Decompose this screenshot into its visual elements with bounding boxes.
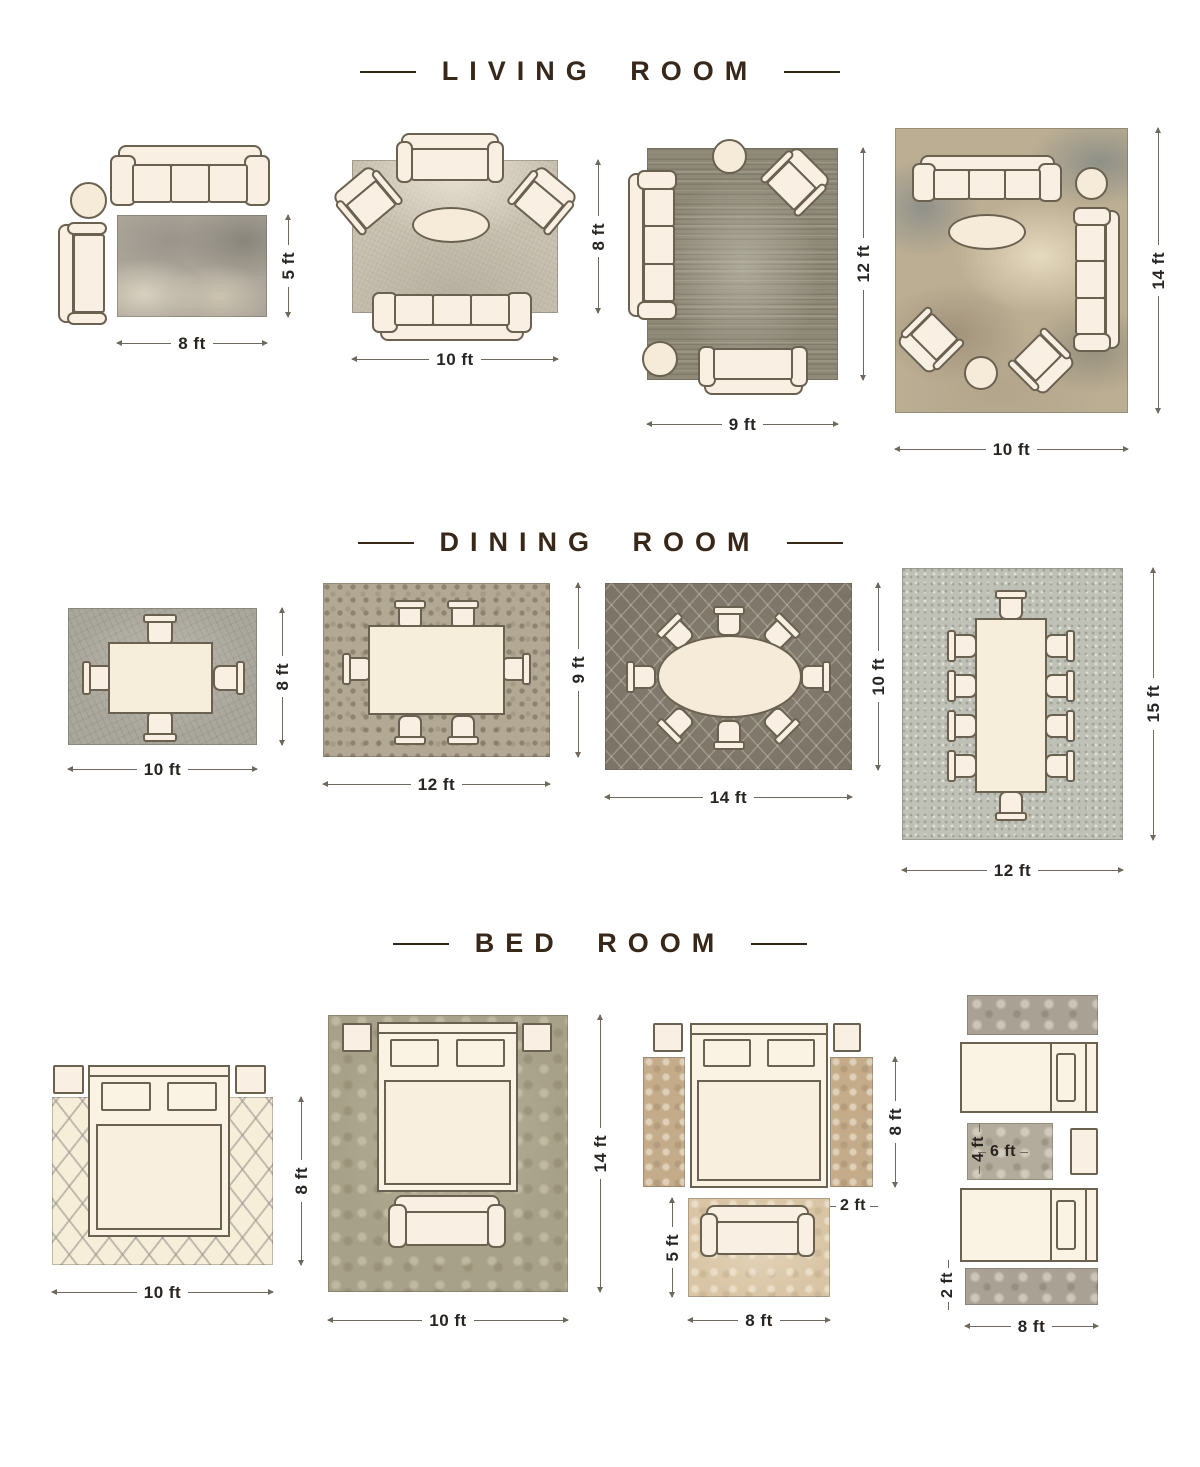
width-dimension: 10 ft (895, 439, 1128, 459)
dimension-line (948, 1302, 949, 1310)
cushion (132, 164, 172, 204)
blanket (697, 1080, 820, 1181)
dining-table (108, 642, 213, 714)
side-table-round (642, 341, 678, 377)
dining-room-9x12-layout: 12 ft 9 ft (318, 580, 593, 795)
sofa-seat (394, 294, 509, 326)
cushion (1075, 224, 1106, 262)
sofa-seat (73, 234, 105, 312)
chair-seat (213, 665, 238, 691)
dimension-line (672, 1268, 673, 1297)
accent-rug-width-dimension: 6 ft (978, 1142, 1050, 1162)
sofa-three-seat (110, 145, 270, 207)
height-dimension: 15 ft (1143, 568, 1163, 840)
sofa-arm (67, 312, 107, 325)
twin-bed (960, 1188, 1098, 1262)
pillow (1056, 1053, 1076, 1101)
cushion (208, 164, 248, 204)
height-dimension: 9 ft (568, 583, 588, 757)
width-dimension: 12 ft (902, 860, 1123, 880)
height-dimension: 12 ft (853, 148, 873, 380)
chair-seat (954, 674, 977, 698)
nightstand (235, 1065, 266, 1094)
nightstand (342, 1023, 372, 1052)
dimension-label: 12 ft (855, 245, 872, 282)
dining-room-12x15-layout: 12 ft 15 ft (895, 565, 1165, 880)
bench (700, 1205, 815, 1258)
dimension-label: 10 ft (429, 351, 480, 368)
dimension-label: 8 ft (887, 1108, 904, 1136)
dining-room-8x10-layout: 10 ft 8 ft (55, 600, 295, 785)
dimension-label: 12 ft (411, 776, 462, 793)
bench-seat (405, 1211, 490, 1246)
sofa-three-seat (1072, 207, 1120, 352)
dimension-line (1052, 1326, 1098, 1327)
title-dash-right (784, 71, 840, 73)
dimension-label: 12 ft (987, 862, 1038, 879)
chair-seat (1045, 634, 1068, 658)
width-dimension: 8 ft (688, 1310, 830, 1330)
bed (690, 1023, 828, 1188)
dining-chair (213, 664, 245, 692)
dining-chair (998, 590, 1024, 620)
dimension-line (878, 702, 879, 770)
living-room-8x10-layout: 10 ft 8 ft (330, 125, 615, 375)
dining-chair (626, 664, 656, 690)
dimension-line (578, 583, 579, 649)
sofa-arm (487, 141, 504, 183)
dimension-line (948, 1260, 949, 1268)
dimension-line (282, 608, 283, 656)
chair-seat (1045, 714, 1068, 738)
living-room-section-title: LIVING ROOM (0, 56, 1200, 87)
bench-arm (487, 1204, 506, 1248)
dimension-label: 10 ft (137, 761, 188, 778)
dining-chair (947, 753, 977, 779)
dimension-line (282, 697, 283, 745)
dining-chair (998, 791, 1024, 821)
dimension-label: 8 ft (1011, 1318, 1053, 1335)
dimension-label: 8 ft (274, 663, 291, 691)
dimension-line (902, 870, 987, 871)
dimension-label: 10 ft (137, 1284, 188, 1301)
dimension-line (578, 691, 579, 757)
blanket (384, 1080, 510, 1185)
loveseat (396, 133, 504, 184)
dimension-line (598, 160, 599, 216)
sofa-back (58, 224, 74, 323)
headboard (690, 1023, 828, 1035)
coffee-table-oval (948, 214, 1026, 250)
sofa-three-seat (628, 170, 678, 320)
chair-seat (954, 714, 977, 738)
living-room-9x12-layout: 9 ft 12 ft (618, 138, 878, 438)
dimension-label: 5 ft (280, 252, 297, 280)
dining-chair (146, 710, 174, 742)
cushion (394, 294, 434, 326)
dimension-line (978, 1152, 986, 1153)
dining-chair (450, 715, 476, 745)
dining-table (975, 618, 1047, 793)
dimension-line (600, 1015, 601, 1128)
chair-seat (717, 613, 741, 636)
cushion (643, 263, 675, 302)
loveseat (58, 222, 108, 325)
title-dash-left (358, 542, 414, 544)
dining-room-section-title: DINING ROOM (0, 527, 1200, 558)
sofa-seat (933, 169, 1041, 200)
bed-divider (1050, 1044, 1052, 1111)
headboard (377, 1022, 518, 1034)
dimension-line (323, 784, 411, 785)
dimension-label: 15 ft (1145, 685, 1162, 722)
coffee-table-oval (412, 207, 490, 243)
dining-chair (716, 606, 742, 636)
runner-rug-2x8 (643, 1057, 685, 1187)
nightstand (653, 1023, 683, 1052)
cushion (432, 294, 472, 326)
dimension-line (1153, 568, 1154, 678)
pillow (101, 1082, 151, 1111)
dining-table-oval (657, 635, 802, 718)
dimension-line (68, 769, 137, 770)
sofa-three-seat (912, 155, 1062, 203)
sofa-back (628, 173, 644, 317)
headboard (88, 1065, 230, 1077)
section-title-text: BED ROOM (475, 928, 726, 959)
sofa-seat (132, 164, 247, 204)
cushion (713, 348, 792, 380)
runner-rug-2x8 (965, 1268, 1098, 1305)
living-room-10x14-layout: 10 ft 14 ft (888, 120, 1173, 460)
dining-chair (1045, 713, 1075, 739)
dimension-line (301, 1202, 302, 1265)
dimension-line (213, 343, 267, 344)
height-dimension: 8 ft (291, 1097, 311, 1265)
chair-seat (801, 665, 824, 689)
pillow (456, 1039, 505, 1067)
dimension-label: 10 ft (986, 441, 1037, 458)
height-dimension: 14 ft (1148, 128, 1168, 413)
dimension-line (763, 424, 838, 425)
dining-chair (801, 664, 831, 690)
runner-width-dimension: 2 ft (828, 1196, 890, 1216)
dining-chair (1045, 673, 1075, 699)
bench-arm (797, 1213, 815, 1256)
rug-size-guide: LIVING ROOM 8 ft 5 ft (0, 0, 1200, 1467)
cushion (411, 148, 489, 181)
sofa-seat (713, 348, 792, 380)
dimension-line (1158, 296, 1159, 413)
dimension-label: 6 ft (986, 1144, 1020, 1160)
bed-room-section-title: BED ROOM (0, 928, 1200, 959)
rug-5x8 (117, 215, 267, 317)
dimension-label: 8 ft (171, 335, 213, 352)
nightstand (522, 1023, 552, 1052)
cushion (470, 294, 510, 326)
sofa-three-seat (372, 291, 532, 341)
chair-seat (954, 754, 977, 778)
dimension-line (481, 359, 558, 360)
dimension-line (301, 1097, 302, 1160)
sofa-back (1105, 210, 1120, 349)
pillow (167, 1082, 217, 1111)
height-dimension: 14 ft (590, 1015, 610, 1292)
sofa-arm (1073, 207, 1111, 226)
cushion (405, 1211, 490, 1246)
dimension-line (878, 583, 879, 651)
pillow (390, 1039, 439, 1067)
sofa-arm (506, 292, 532, 333)
cushion (643, 225, 675, 264)
bench (388, 1195, 506, 1249)
dimension-line (672, 1198, 673, 1227)
chair-seat (717, 720, 741, 743)
dimension-label: 10 ft (870, 658, 887, 695)
dining-chair (501, 656, 531, 682)
title-dash-right (787, 542, 843, 544)
bed-divider (1050, 1190, 1052, 1260)
dimension-label: 9 ft (722, 416, 764, 433)
title-dash-left (393, 943, 449, 945)
dimension-label: 14 ft (703, 789, 754, 806)
width-dimension: 10 ft (68, 759, 257, 779)
dimension-label: 14 ft (592, 1135, 609, 1172)
chair-seat (999, 791, 1023, 814)
nightstand (53, 1065, 84, 1094)
bench-seat (716, 1221, 799, 1255)
bedroom-twin-beds-layout: 4 ft 6 ft 2 ft 8 ft (940, 990, 1185, 1345)
dimension-label: 8 ft (590, 223, 607, 251)
sofa-arm (1038, 163, 1062, 202)
cushion (73, 234, 105, 312)
width-dimension: 8 ft (965, 1316, 1098, 1336)
dining-room-10x14-layout: 14 ft 10 ft (600, 578, 890, 813)
dining-chair (716, 720, 742, 750)
cushion (716, 1221, 799, 1255)
section-title-text: DINING ROOM (440, 527, 761, 558)
dining-table (368, 625, 505, 715)
height-dimension: 5 ft (278, 215, 298, 317)
dimension-line (870, 1206, 878, 1207)
cushion (643, 188, 675, 227)
dining-chair (947, 673, 977, 699)
dimension-label: 14 ft (1150, 252, 1167, 289)
runner-height-dimension: 8 ft (885, 1057, 905, 1187)
dimension-line (352, 359, 429, 360)
sofa-back (704, 378, 803, 395)
sofa-seat (1075, 224, 1106, 334)
dining-chair (947, 633, 977, 659)
dimension-label: 5 ft (664, 1234, 681, 1262)
width-dimension: 10 ft (352, 349, 558, 369)
dining-chair (397, 715, 423, 745)
headboard (1085, 1044, 1096, 1111)
loveseat (698, 345, 808, 395)
dimension-line (1158, 128, 1159, 245)
sofa-seat (643, 188, 675, 302)
dimension-label: 2 ft (836, 1198, 870, 1214)
living-room-5x8-layout: 8 ft 5 ft (55, 145, 300, 355)
twin-bed (960, 1042, 1098, 1113)
sofa-arm (1073, 333, 1111, 352)
runner-rug-2x8 (830, 1057, 873, 1187)
width-dimension: 10 ft (52, 1282, 273, 1302)
width-dimension: 12 ft (323, 774, 550, 794)
dimension-line (462, 784, 550, 785)
dimension-line (1020, 1152, 1028, 1153)
sofa-back (380, 324, 524, 341)
dimension-line (1153, 730, 1154, 840)
dimension-line (288, 287, 289, 317)
chair-seat (633, 665, 656, 689)
height-dimension: 8 ft (588, 160, 608, 313)
dimension-line (754, 797, 852, 798)
dimension-line (979, 1166, 980, 1174)
pillow (767, 1039, 815, 1066)
chair-seat (999, 597, 1023, 620)
dimension-line (288, 215, 289, 245)
dimension-line (52, 1292, 137, 1293)
dimension-line (1037, 449, 1128, 450)
height-dimension: 8 ft (272, 608, 292, 745)
bedroom-runners-layout: 8 ft 2 ft 5 ft 8 ft (635, 1015, 925, 1350)
sofa-arm (67, 222, 107, 235)
width-dimension: 14 ft (605, 787, 852, 807)
bedroom-8x10-layout: 10 ft 8 ft (45, 1058, 315, 1308)
chair-seat (451, 715, 475, 738)
dimension-line (895, 449, 986, 450)
headboard (1085, 1190, 1096, 1260)
sofa-arm (790, 346, 808, 387)
dimension-line (895, 1057, 896, 1101)
pillow (703, 1039, 751, 1066)
dimension-line (474, 1320, 568, 1321)
dimension-label: 10 ft (422, 1312, 473, 1329)
dimension-line (895, 1143, 896, 1187)
cushion (1075, 260, 1106, 298)
dimension-line (979, 1124, 980, 1132)
title-dash-right (751, 943, 807, 945)
dimension-line (188, 769, 257, 770)
dimension-line (117, 343, 171, 344)
dimension-line (688, 1320, 738, 1321)
dimension-line (328, 1320, 422, 1321)
cushion (968, 169, 1005, 200)
dimension-label: 9 ft (570, 656, 587, 684)
cushion (1075, 297, 1106, 335)
dimension-line (780, 1320, 830, 1321)
dimension-line (965, 1326, 1011, 1327)
sofa-arm (637, 301, 677, 321)
cushion (1004, 169, 1041, 200)
dimension-line (598, 257, 599, 313)
dimension-line (863, 148, 864, 238)
section-title-text: LIVING ROOM (442, 56, 759, 87)
side-table-round (964, 356, 998, 390)
nightstand (1070, 1128, 1098, 1175)
sofa-seat (411, 148, 489, 181)
dimension-line (600, 1179, 601, 1292)
side-table-round (70, 182, 107, 219)
chair-seat (1045, 754, 1068, 778)
width-dimension: 8 ft (117, 333, 267, 353)
dimension-label: 2 ft (936, 1272, 960, 1298)
runner-rug-2x8 (967, 995, 1098, 1035)
title-dash-left (360, 71, 416, 73)
dimension-label: 8 ft (293, 1167, 310, 1195)
width-dimension: 9 ft (647, 414, 838, 434)
dining-chair (947, 713, 977, 739)
pillow (1056, 1200, 1076, 1250)
bedroom-10x14-layout: 10 ft 14 ft (322, 1008, 612, 1343)
height-dimension: 10 ft (868, 583, 888, 770)
foot-rug-height-dimension: 5 ft (662, 1198, 682, 1297)
dining-chair (1045, 753, 1075, 779)
chair-seat (1045, 674, 1068, 698)
sofa-arm (637, 170, 677, 190)
cushion (170, 164, 210, 204)
dimension-label: 8 ft (738, 1312, 780, 1329)
side-table-round (712, 139, 747, 174)
nightstand (833, 1023, 861, 1052)
chair-seat (954, 634, 977, 658)
bed (377, 1022, 518, 1192)
runner-height-dimension: 2 ft (938, 1260, 958, 1310)
side-table-round (1075, 167, 1108, 200)
chair-seat (398, 715, 422, 738)
dimension-line (605, 797, 703, 798)
bed (88, 1065, 230, 1237)
sofa-arm (244, 155, 270, 206)
blanket (96, 1124, 223, 1230)
dining-chair (1045, 633, 1075, 659)
cushion (933, 169, 970, 200)
width-dimension: 10 ft (328, 1310, 568, 1330)
dimension-line (188, 1292, 273, 1293)
dimension-line (863, 290, 864, 380)
dimension-line (1038, 870, 1123, 871)
dimension-line (647, 424, 722, 425)
